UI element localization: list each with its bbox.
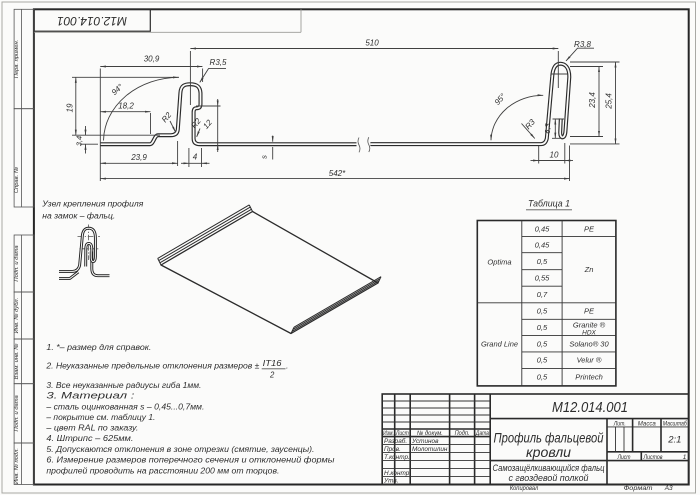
svg-text:Масса: Масса (638, 420, 656, 427)
svg-text:Листов: Листов (643, 454, 663, 461)
svg-text:1. *– размер для справок.: 1. *– размер для справок. (46, 342, 151, 352)
svg-text:Перв. примен.: Перв. примен. (14, 40, 20, 79)
svg-text:s: s (260, 155, 269, 159)
svg-text:М12.014.001: М12.014.001 (552, 400, 628, 416)
svg-text:6,3: 6,3 (543, 122, 552, 133)
svg-text:0,55: 0,55 (535, 274, 550, 283)
svg-text:5. Допускаются отклонения в з: 5. Допускаются отклонения в зоне отрезки… (46, 444, 314, 454)
svg-text:Подп. и дата: Подп. и дата (14, 394, 20, 431)
svg-text:Устинов: Устинов (411, 438, 439, 445)
svg-text:№ докум.: № докум. (417, 429, 443, 437)
svg-text:25,4: 25,4 (605, 93, 614, 110)
svg-text:Разраб.: Разраб. (384, 437, 407, 445)
svg-text:Grand Line: Grand Line (481, 340, 518, 349)
svg-text:18,2: 18,2 (118, 102, 134, 111)
svg-text:Таблица 1: Таблица 1 (528, 199, 570, 210)
svg-text:Самозащёлкивающийся фальц: Самозащёлкивающийся фальц (493, 463, 605, 473)
svg-text:2:1: 2:1 (667, 435, 681, 446)
svg-text:– цвет RAL по заказу.: – цвет RAL по заказу. (45, 423, 138, 433)
svg-text:HDX: HDX (582, 330, 596, 337)
svg-text:с гвоздевой полкой: с гвоздевой полкой (509, 473, 589, 483)
svg-text:Взам. инв. №: Взам. инв. № (14, 343, 20, 379)
svg-text:R3,8: R3,8 (574, 40, 591, 49)
svg-text:Формат: Формат (624, 485, 654, 492)
svg-text:Velur ®: Velur ® (577, 356, 602, 365)
svg-text:на замок – фальц.: на замок – фальц. (42, 211, 115, 221)
svg-text:профилей проводить на расстоян: профилей проводить на расстоянии 200 мм … (46, 466, 279, 476)
svg-text:3,4: 3,4 (75, 136, 84, 146)
svg-text:А3: А3 (664, 485, 673, 492)
svg-text:0,5: 0,5 (537, 356, 548, 365)
svg-text:0,7: 0,7 (537, 290, 548, 299)
svg-text:R3,5: R3,5 (210, 58, 227, 67)
svg-text:4: 4 (193, 153, 198, 162)
svg-text:Пров.: Пров. (384, 446, 401, 453)
svg-text:Молотилин: Молотилин (412, 446, 448, 453)
svg-text:542*: 542* (329, 169, 346, 178)
svg-text:.: . (286, 360, 288, 370)
svg-text:2. Неуказанные предельные отк: 2. Неуказанные предельные отклонения раз… (45, 360, 259, 370)
svg-text:Лит.: Лит. (613, 420, 626, 427)
svg-text:3. Все неуказанные радиусы ги: 3. Все неуказанные радиусы гиба 1мм. (46, 380, 201, 390)
svg-text:510: 510 (365, 39, 379, 48)
svg-text:4. Штрипс – 625мм.: 4. Штрипс – 625мм. (46, 433, 133, 443)
svg-text:1: 1 (683, 454, 687, 461)
svg-text:Справ. №: Справ. № (14, 167, 20, 193)
svg-text:3. Материал :: 3. Материал : (46, 391, 135, 401)
svg-text:IT16: IT16 (263, 359, 283, 368)
svg-text:30,9: 30,9 (144, 55, 160, 64)
svg-text:0,5: 0,5 (537, 307, 548, 316)
svg-text:Инв. № дубл.: Инв. № дубл. (14, 298, 20, 334)
svg-text:Дата: Дата (475, 430, 489, 437)
svg-text:0,45: 0,45 (535, 225, 550, 234)
svg-text:Инв. № подл.: Инв. № подл. (14, 448, 20, 484)
svg-text:Лист: Лист (395, 430, 409, 437)
svg-text:Масштаб: Масштаб (663, 419, 687, 427)
svg-text:Zn: Zn (584, 265, 594, 274)
svg-text:Т.контр.: Т.контр. (384, 454, 410, 461)
svg-text:– покрытие см. таблицу 1.: – покрытие см. таблицу 1. (45, 412, 155, 422)
svg-text:– сталь оцинкованная s – 0,45.: – сталь оцинкованная s – 0,45...0,7мм. (45, 402, 204, 412)
svg-text:0,5: 0,5 (537, 323, 548, 332)
svg-text:Solano® 30: Solano® 30 (569, 340, 609, 349)
svg-text:PE: PE (584, 307, 595, 316)
svg-text:Копировал: Копировал (510, 485, 539, 492)
svg-text:10: 10 (550, 151, 559, 160)
svg-text:Утв.: Утв. (383, 478, 399, 485)
svg-text:Optima: Optima (487, 258, 511, 267)
svg-text:Подп.: Подп. (455, 429, 470, 437)
svg-text:Printech: Printech (575, 373, 603, 382)
svg-text:Н.контр.: Н.контр. (384, 470, 411, 477)
svg-text:PE: PE (584, 225, 595, 234)
svg-text:0,5: 0,5 (537, 257, 548, 266)
svg-text:кровли: кровли (526, 444, 571, 460)
svg-text:Подп. и дата: Подп. и дата (14, 245, 20, 282)
svg-text:0,45: 0,45 (535, 241, 550, 250)
svg-text:Лист: Лист (617, 454, 631, 461)
svg-text:Granite ®: Granite ® (573, 321, 606, 330)
svg-text:М12.014.001: М12.014.001 (57, 14, 127, 28)
svg-text:Изм.: Изм. (383, 430, 394, 437)
svg-text:Узел крепления профиля: Узел крепления профиля (41, 199, 143, 209)
svg-text:6. Измерение размеров попереч: 6. Измерение размеров поперечного сечени… (46, 455, 335, 465)
svg-text:0,5: 0,5 (537, 340, 548, 349)
svg-text:19: 19 (66, 103, 75, 112)
svg-text:0,5: 0,5 (537, 373, 548, 382)
svg-text:23,9: 23,9 (130, 153, 147, 162)
svg-text:2: 2 (269, 371, 275, 380)
svg-text:23,4: 23,4 (588, 92, 597, 109)
